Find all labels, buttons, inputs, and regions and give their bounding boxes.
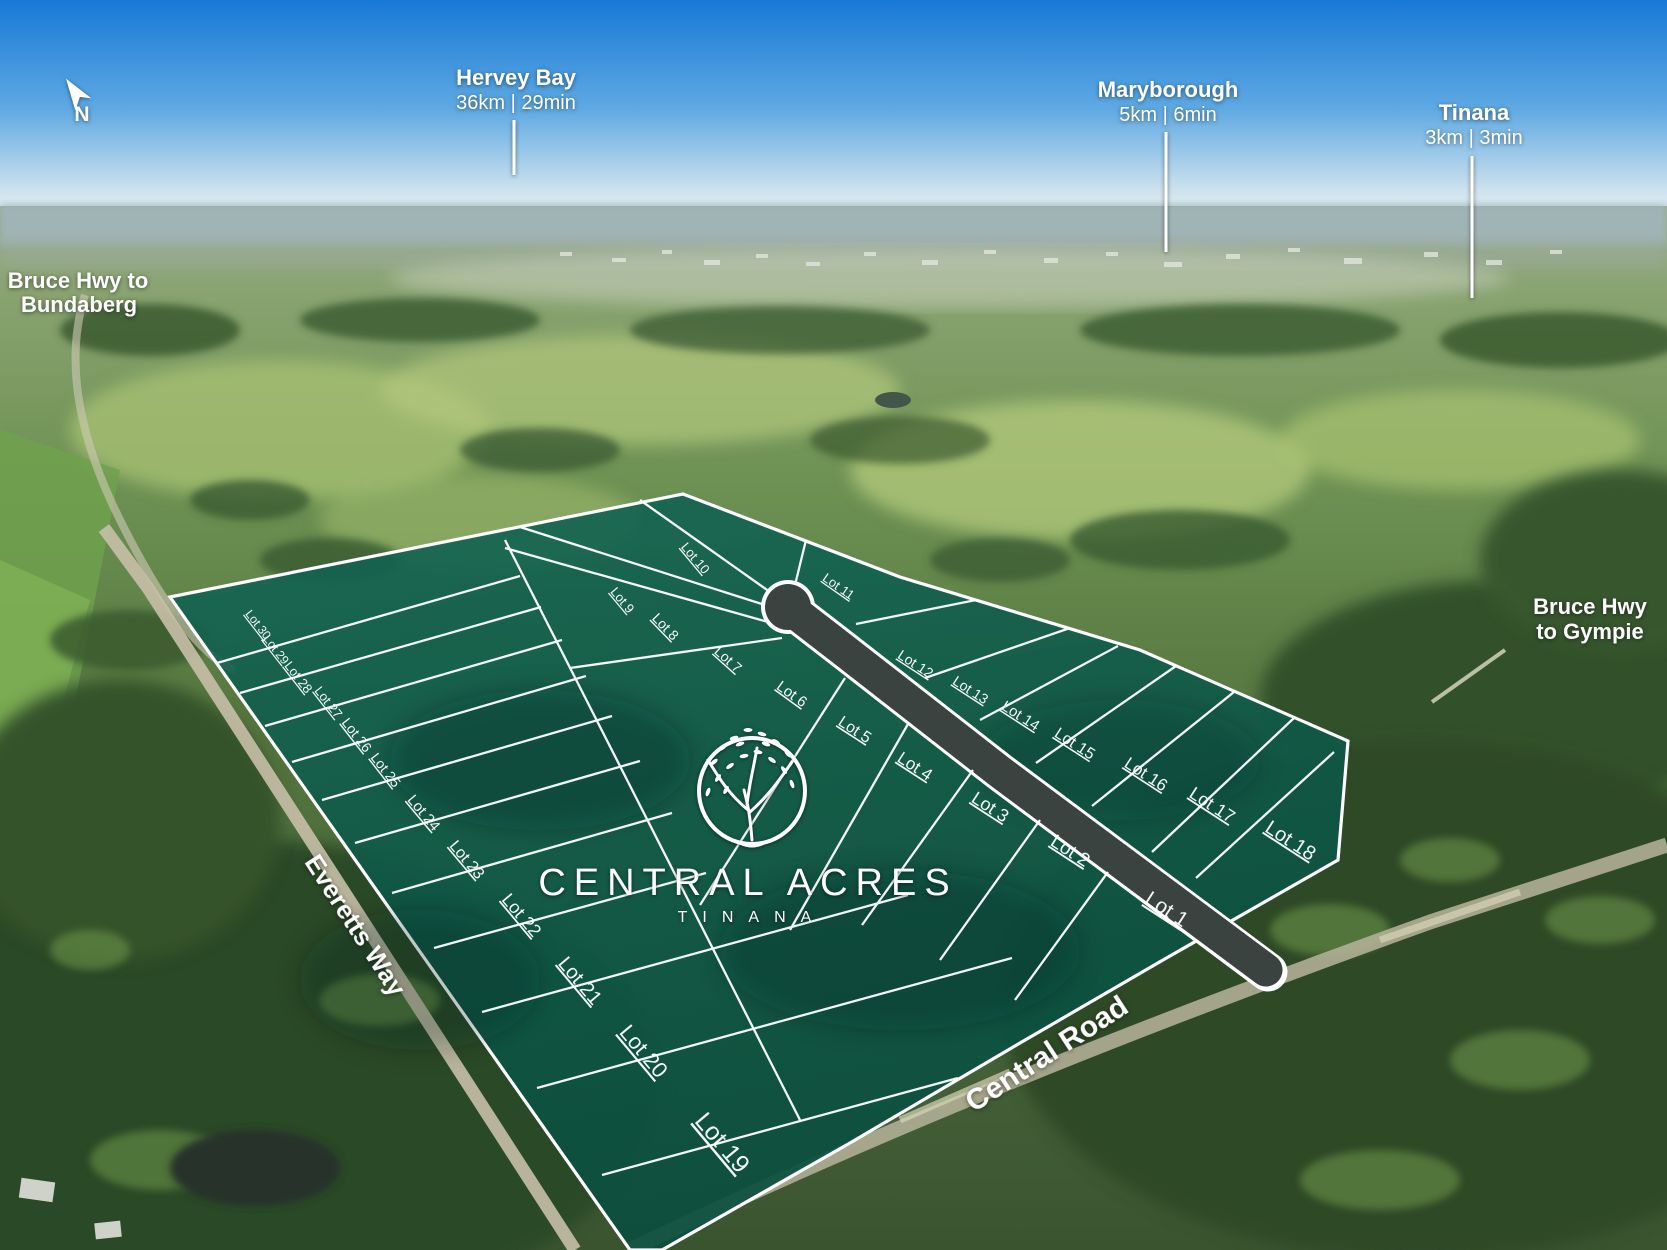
bundaberg-line1: Bruce Hwy to [8,268,149,293]
tinana-distance: 3km | 3min [1425,127,1522,149]
compass-n-label: N [74,103,89,126]
hervey-bay-name: Hervey Bay [456,65,577,90]
maryborough-distance: 5km | 6min [1119,104,1216,126]
township-haze [390,248,1510,308]
brand-name: CENTRAL ACRES [538,862,957,904]
maryborough-name: Maryborough [1098,77,1239,102]
aerial-masterplan: Lot 1 Lot 2 Lot 3 Lot 4 Lot 5 Lot 6 Lot … [0,0,1667,1250]
label-bruce-hwy-bundaberg: Bruce Hwy to Bundaberg [8,268,149,317]
bundaberg-line2: Bundaberg [21,292,137,317]
scene: Lot 1 Lot 2 Lot 3 Lot 4 Lot 5 Lot 6 Lot … [0,0,1667,1250]
gympie-line1: Bruce Hwy [1533,594,1647,619]
gympie-line2: to Gympie [1536,619,1644,644]
pond [170,1130,340,1206]
tinana-name: Tinana [1439,100,1510,125]
brand-location: TINANA [678,909,827,926]
label-bruce-hwy-gympie: Bruce Hwy to Gympie [1533,594,1647,644]
dam [875,392,911,408]
sky [0,0,1667,218]
hervey-bay-distance: 36km | 29min [456,92,576,114]
